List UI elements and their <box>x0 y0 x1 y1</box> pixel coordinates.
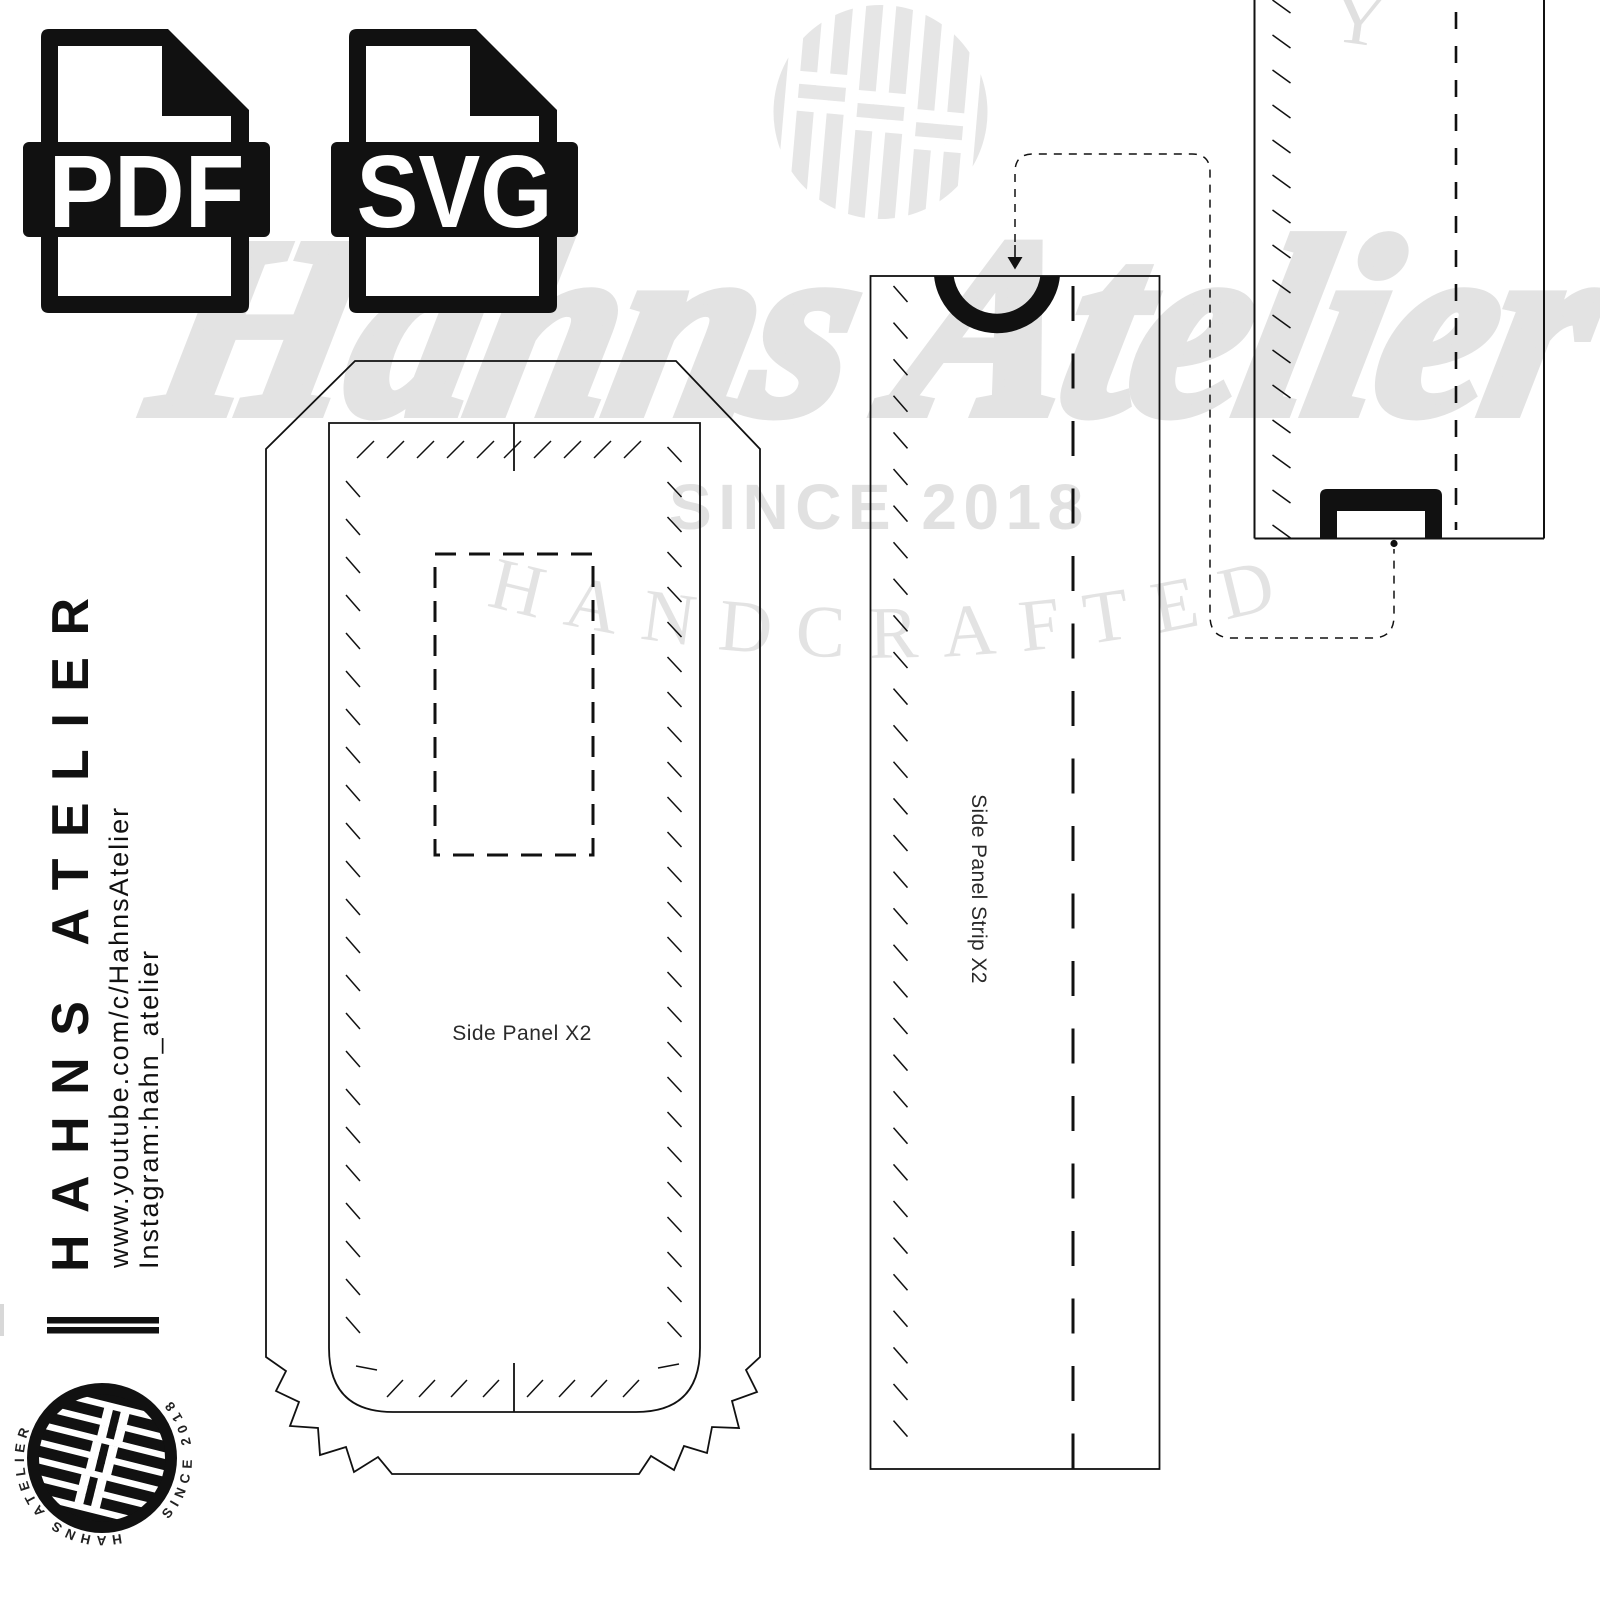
svg-text:HANDCRAFTED: HANDCRAFTED <box>482 538 1307 675</box>
svg-text:www.youtube.com/c/HahnsAtelier: www.youtube.com/c/HahnsAtelier <box>104 806 134 1269</box>
svg-text:Side Panel X2: Side Panel X2 <box>452 1022 592 1045</box>
svg-text:HAHNS ATELIER: HAHNS ATELIER <box>42 577 100 1273</box>
svg-text:SVG: SVG <box>357 134 553 249</box>
svg-text:Side Panel Strip X2: Side Panel Strip X2 <box>967 794 990 984</box>
svg-text:Y: Y <box>1326 0 1392 64</box>
svg-text:SINCE 2018: SINCE 2018 <box>669 471 1090 543</box>
svg-text:Instagram:hahn_atelier: Instagram:hahn_atelier <box>134 949 164 1269</box>
svg-text:PDF: PDF <box>49 134 245 249</box>
